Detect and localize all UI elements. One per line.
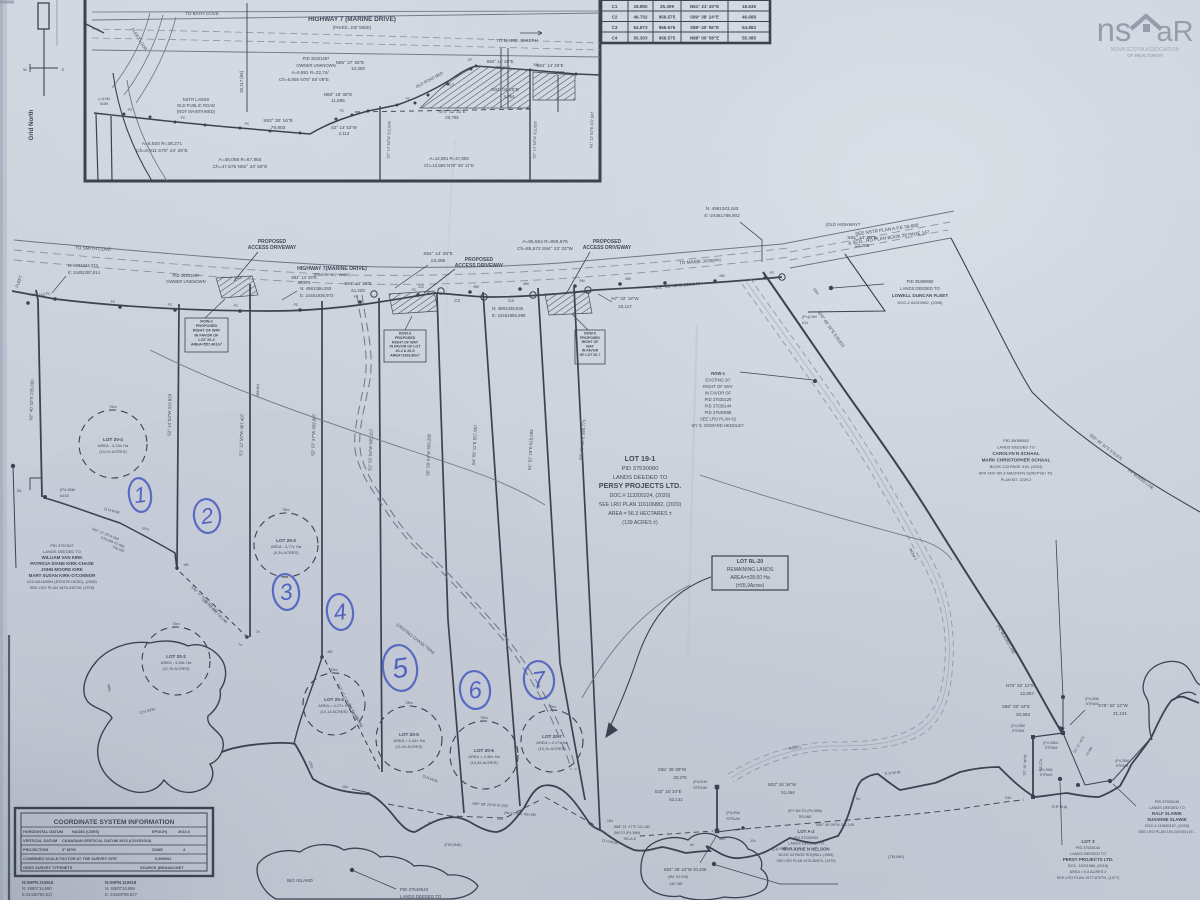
svg-text:C3: C3 [612,25,618,30]
svg-text:N:SHPN 210918: N:SHPN 210918 [105,880,137,885]
svg-text:31,131: 31,131 [1113,711,1127,716]
svg-text:18.850: 18.850 [633,4,647,9]
svg-text:69,576: 69,576 [298,280,311,285]
svg-text:LOT 19-1: LOT 19-1 [625,454,656,463]
svg-text:PERSY PROJECTS LTD.: PERSY PROJECTS LTD. [1063,857,1113,862]
svg-text:LANDS DEEDED TO: LANDS DEEDED TO [788,842,824,846]
svg-text:STRUM: STRUM [1086,702,1099,706]
svg-text:LOT A-2: LOT A-2 [798,829,815,834]
svg-text:PID 37530060: PID 37530060 [621,466,658,472]
svg-text:ns: ns [1097,11,1132,48]
svg-text:S84° 38' 43"W 30,408: S84° 38' 43"W 30,408 [664,867,708,872]
svg-text:PC: PC [181,116,186,120]
svg-text:N22° 16' 34"W: N22° 16' 34"W [768,782,797,787]
svg-text:4,954: 4,954 [504,94,516,99]
svg-text:(P4,35M: (P4,35M [1115,759,1129,763]
svg-text:52,141: 52,141 [669,797,683,802]
svg-text:54.873: 54.873 [633,25,647,30]
svg-text:LOT 3: LOT 3 [1081,839,1094,844]
svg-text:N85° 37' 56"E: N85° 37' 56"E [336,60,365,65]
svg-text:CP: CP [468,58,473,62]
svg-text:BM: BM [579,279,584,283]
svg-text:0,999931: 0,999931 [155,856,172,861]
svg-text:TO MARIE JOSEPH: TO MARIE JOSEPH [496,38,538,43]
svg-text:C2: C2 [418,284,424,289]
svg-text:RIGHT OF WAY: RIGHT OF WAY [392,340,419,344]
svg-text:LOT 20-7: LOT 20-7 [542,734,562,739]
svg-text:S89° 49' 09"W 341,149: S89° 49' 09"W 341,149 [816,823,854,827]
svg-text:(FILISM: (FILISM [693,780,707,784]
svg-text:20,117 [66]: 20,117 [66] [239,71,244,93]
svg-text:PC: PC [111,300,116,304]
svg-text:(OLD HIGHWAY7: (OLD HIGHWAY7 [826,222,861,227]
svg-text:HORIZONTAL DATUM: HORIZONTAL DATUM [23,829,63,834]
svg-text:NSTR LANDS: NSTR LANDS [183,97,210,102]
svg-text:78m: 78m [282,508,289,512]
svg-text:S84° 14' 29"E: S84° 14' 29"E [291,275,317,280]
svg-text:SEE LRO PLAN 19//-0/3784 (19..: SEE LRO PLAN 19//-0/3784 (19... [1138,830,1195,834]
svg-text:51,464: 51,464 [781,790,795,795]
svg-text:Ch=6,855 N78° 58' 08"E: Ch=6,855 N78° 58' 08"E [279,77,329,82]
svg-text:9M: 9M [184,563,189,567]
svg-text:LOT 20-4: LOT 20-4 [103,437,123,442]
svg-text:COMBINED SCALE FACTOR AT THE S: COMBINED SCALE FACTOR AT THE SURVEY SITE [23,856,117,861]
svg-text:A=48,058 R=67,864: A=48,058 R=67,864 [219,157,262,163]
svg-text:12,067: 12,067 [1020,691,1034,696]
svg-text:9±: 9± [428,821,432,825]
svg-text:AREA = 0,8 ACRES ±: AREA = 0,8 ACRES ± [1070,870,1107,874]
svg-text:LOT 20-3: LOT 20-3 [198,338,214,342]
svg-text:RALF SLAWIK: RALF SLAWIK [1152,811,1183,816]
svg-text:(P4,35M=: (P4,35M= [1043,741,1059,745]
svg-text:PID 35389980: PID 35389980 [907,279,934,284]
svg-text:CAROLYN N SCHAAL: CAROLYN N SCHAAL [992,451,1039,456]
svg-text:N51° 21' 20"E: N51° 21' 20"E [690,4,719,9]
svg-text:S84° 14' 29"E: S84° 14' 29"E [536,63,563,68]
svg-text:DOC#3148994 (ESTATE DEED), (20: DOC#3148994 (ESTATE DEED), (2006) [27,579,97,584]
svg-text:S88° 21' 47"E 131,182: S88° 21' 47"E 131,182 [614,825,650,829]
svg-text:N34° 04' 25"E: N34° 04' 25"E [491,87,518,92]
svg-text:PID 37543543: PID 37543543 [400,887,429,892]
svg-text:IN FAVOR OF LOT: IN FAVOR OF LOT [390,345,422,349]
svg-text:N:SHPN 210915: N:SHPN 210915 [22,880,54,885]
svg-text:ROW-3: ROW-3 [399,332,411,336]
svg-text:30,375: 30,375 [673,775,687,780]
svg-text:SEE LRO PLAN 1975-8257U, (1970: SEE LRO PLAN 1975-8257U, (1970) [776,859,835,863]
svg-text:BOOK 233 PAGE 918, (2004): BOOK 233 PAGE 918, (2004) [990,464,1044,469]
svg-text:PID 37530144: PID 37530144 [1076,846,1100,850]
svg-text:(10,14 ACRES): (10,14 ACRES) [320,709,348,714]
svg-text:N: 4981339,936: N: 4981339,936 [492,306,524,311]
svg-text:S78° 52' 12"W: S78° 52' 12"W [1098,703,1128,708]
svg-text:13,295: 13,295 [431,258,446,264]
svg-text:PC: PC [234,304,239,308]
svg-text:(10,8± ACRES): (10,8± ACRES) [470,760,498,765]
svg-text:STRUM: STRUM [693,786,707,790]
svg-text:BM: BM [719,274,724,278]
svg-text:18.635: 18.635 [742,4,756,9]
svg-text:(10,3± ACRES): (10,3± ACRES) [538,746,566,751]
svg-text:30,910: 30,910 [496,65,510,70]
svg-text:(NOT MAINTAINED): (NOT MAINTAINED) [177,109,216,114]
svg-text:NETS: NETS [62,865,73,870]
svg-text:IN FAVOR OF: IN FAVOR OF [705,391,732,396]
svg-text:78m: 78m [480,716,487,720]
svg-text:E: 24448799,527: E: 24448799,527 [105,892,138,897]
svg-text:LOT 20-2: LOT 20-2 [166,654,186,659]
svg-text:6189: 6189 [100,102,108,106]
svg-text:Grid North: Grid North [28,109,35,140]
svg-text:RIGHT OF WAY: RIGHT OF WAY [703,384,733,389]
svg-text:13±: 13± [1005,796,1011,800]
svg-text:956.575: 956.575 [659,25,676,30]
svg-text:N: 4981343,183: N: 4981343,183 [706,206,739,211]
svg-text:(TELINE): (TELINE) [888,854,905,859]
svg-text:PC: PC [245,122,250,126]
svg-text:BM: BM [625,277,630,281]
svg-text:JOHN MOORE KIRK: JOHN MOORE KIRK [41,567,84,572]
svg-text:D.H.W.M.: D.H.W.M. [1052,805,1068,810]
svg-text:DOC.# 84324982, (2008): DOC.# 84324982, (2008) [898,300,944,305]
svg-text:OF LOT 20-?: OF LOT 20-? [580,353,601,357]
svg-text:S32° 16' 34"E: S32° 16' 34"E [654,789,681,794]
svg-text:(Fv,35M: (Fv,35M [1040,768,1053,772]
svg-text:PC: PC [294,303,299,307]
svg-text:N: 4980718,990: N: 4980718,990 [22,886,52,891]
svg-text:(P4,35M: (P4,35M [1011,724,1025,728]
svg-text:MARJORIE N NELSON: MARJORIE N NELSON [782,846,829,851]
svg-text:WILLIAM VAN KIRK: WILLIAM VAN KIRK [42,555,84,560]
svg-text:76m: 76m [172,622,179,626]
svg-text:N70° 32' 31"E: N70° 32' 31"E [438,109,465,114]
svg-text:PC: PC [46,292,51,296]
svg-text:25.309: 25.309 [660,4,674,9]
svg-text:OF REALTORS®: OF REALTORS® [1127,52,1163,58]
svg-text:PID 37530126: PID 37530126 [705,397,732,402]
svg-text:LANDS DEEDED TO: LANDS DEEDED TO [900,286,940,291]
svg-text:20,755: 20,755 [445,115,459,120]
svg-text:S84° 14' 29"E: S84° 14' 29"E [486,59,513,64]
svg-text:LANDS DEEDED TO: LANDS DEEDED TO [400,894,442,899]
svg-text:79m: 79m [548,705,555,709]
svg-text:3° MTM: 3° MTM [62,847,76,852]
svg-text:E: 24451387,814: E: 24451387,814 [68,270,101,275]
svg-text:20,583: 20,583 [1016,712,1030,717]
svg-text:MARK CHRISTOPHER SCHAAL: MARK CHRISTOPHER SCHAAL [982,458,1051,463]
svg-text:VERTICAL DATUM: VERTICAL DATUM [23,838,57,843]
svg-text:55.303: 55.303 [633,36,647,41]
svg-text:N76° 52' 12"E: N76° 52' 12"E [1006,683,1035,688]
svg-text:10,390: 10,390 [351,66,365,71]
svg-text:LOT 20-5: LOT 20-5 [399,732,419,737]
svg-text:PID 37530598: PID 37530598 [705,410,732,415]
svg-text:LANDS DEEDED TO: LANDS DEEDED TO [43,549,81,554]
svg-text:(P4,35M: (P4,35M [1085,697,1099,701]
svg-text:(9M TO (P4,35M): (9M TO (P4,35M) [614,831,640,835]
svg-text:3±: 3± [17,488,22,493]
svg-text:PERSY PROJECTS LTD.: PERSY PROJECTS LTD. [599,481,681,490]
svg-text:OWNER UNKNOWN: OWNER UNKNOWN [166,279,205,284]
svg-text:BM: BM [473,285,478,289]
svg-text:BOOK 63 PAGE ROQWILL (1969): BOOK 63 PAGE ROQWILL (1969) [779,853,834,857]
svg-text:(±55,9Acres): (±55,9Acres) [736,583,765,589]
svg-text:20-4 & 20-5: 20-4 & 20-5 [396,349,415,353]
svg-text:PC: PC [128,108,133,112]
svg-text:N88° 00' 58"E: N88° 00' 58"E [690,36,719,41]
svg-text:AREA = 4,17± Ha: AREA = 4,17± Ha [536,740,568,745]
svg-text:S88° 40' 56"E: S88° 40' 56"E [690,25,719,30]
svg-text:S89° 38' 24"E: S89° 38' 24"E [690,15,719,20]
svg-text:OWNER UNKNOWN: OWNER UNKNOWN [296,63,335,68]
svg-text:aR: aR [1156,16,1193,48]
svg-text:SOURCE (BRANACNET: SOURCE (BRANACNET [140,865,184,870]
svg-text:C2: C2 [612,15,618,20]
svg-text:21±: 21± [497,817,503,821]
svg-text:STRUM: STRUM [1012,729,1025,733]
svg-text:TIELA-E: TIELA-E [623,837,637,841]
svg-text:LOT RL-20: LOT RL-20 [737,559,763,565]
svg-text:ZONE: ZONE [152,847,163,852]
svg-text:SEE LRO PLAN 62: SEE LRO PLAN 62 [700,417,737,422]
svg-text:79,803: 79,803 [271,125,286,131]
svg-text:LOT 20-4: LOT 20-4 [324,697,344,702]
svg-text:140 INE: 140 INE [669,882,683,886]
svg-text:LANDS DEEDED TO: LANDS DEEDED TO [997,445,1035,450]
svg-text:(11,0± ACRES): (11,0± ACRES) [395,744,423,749]
svg-text:(PAVED, 100' WIDE): (PAVED, 100' WIDE) [333,25,372,30]
svg-text:AREA=±28,60 Ha: AREA=±28,60 Ha [730,575,770,581]
svg-text:TO BATH COVE: TO BATH COVE [185,11,219,16]
svg-text:W: W [23,68,27,72]
svg-text:N7° 02' 18"W: N7° 02' 18"W [611,296,639,301]
svg-text:PC: PC [770,271,775,275]
svg-text:SEE LRO PLAN 1875-030781 (1975: SEE LRO PLAN 1875-030781 (1975) [30,585,95,590]
svg-text:NAD83 (CSRS): NAD83 (CSRS) [72,829,100,834]
svg-text:(P4.35M: (P4.35M [60,487,75,492]
svg-text:STRUM: STRUM [726,817,740,821]
svg-text:AREA=557,461m²: AREA=557,461m² [191,343,223,347]
svg-text:54.883: 54.883 [742,25,756,30]
svg-text:COORDINATE SYSTEM INFORMATIO: COORDINATE SYSTEM INFORMATION [54,819,175,826]
svg-text:SFR TAXI OR & MACKFFN SURVFYB: SFR TAXI OR & MACKFFN SURVFYB I TD. [979,472,1054,476]
svg-text:S84° 14' 29"E: S84° 14' 29"E [344,281,371,286]
svg-text:S65° 45' 09"W: S65° 45' 09"W [658,767,687,772]
svg-text:LANDS DEEDED TO: LANDS DEEDED TO [1070,852,1106,856]
svg-text:IN FAVOR OF: IN FAVOR OF [195,333,220,337]
svg-text:PROPOSED: PROPOSED [395,336,416,340]
svg-text:PC: PC [412,288,417,292]
svg-text:PID 35331497: PID 35331497 [303,56,330,61]
svg-text:E: 24451956,995: E: 24451956,995 [492,313,526,318]
svg-text:SEE LRO PLAN 116106882, (2020): SEE LRO PLAN 116106882, (2020) [599,502,682,508]
svg-text:SEE LRO PLAN 1977-875TH, (1977: SEE LRO PLAN 1977-875TH, (1977) [1057,876,1120,880]
svg-text:S2° 14' 53"W 312,829: S2° 14' 53"W 312,829 [167,393,173,436]
svg-text:AREA = 56.3 HECTARES ±: AREA = 56.3 HECTARES ± [608,511,672,517]
svg-text:(9M TO EM): (9M TO EM) [668,875,689,879]
svg-text:Ch=85,572 S84° 23' 33"W: Ch=85,572 S84° 23' 33"W [517,246,573,252]
svg-text:18±: 18± [607,819,613,823]
svg-text:(TIELINE): (TIELINE) [444,842,462,847]
svg-text:79m: 79m [330,668,337,672]
svg-text:HIGHWAY 7 (MARINE DRIVE): HIGHWAY 7 (MARINE DRIVE) [308,16,396,23]
svg-text:Ch=12,865 N78° 06' 11"E: Ch=12,865 N78° 06' 11"E [424,163,474,168]
svg-text:EASTING 20': EASTING 20' [705,378,730,383]
svg-text:N: 4981356,293: N: 4981356,293 [300,286,332,291]
svg-text:956.575: 956.575 [659,36,676,41]
svg-text:A=85,584 R=956,575: A=85,584 R=956,575 [522,239,568,245]
svg-text:PID 35089952: PID 35089952 [1003,438,1029,443]
svg-text:7±: 7± [256,630,260,634]
svg-text:A=12,891 R=47,808: A=12,891 R=47,808 [429,156,469,161]
svg-text:(PAVED, 102' WIDE): (PAVED, 102' WIDE) [314,272,352,277]
svg-text:PID 37530093: PID 37530093 [794,836,818,840]
svg-text:S83° 30' 16"E: S83° 30' 16"E [263,118,293,124]
svg-text:LOWELL DUNCAN FLEET: LOWELL DUNCAN FLEET [892,293,949,298]
svg-text:20,117: 20,117 [618,304,632,309]
svg-text:2,113: 2,113 [339,131,350,136]
svg-text:DOC.# 119831167, (2016): DOC.# 119831167, (2016) [1145,824,1190,828]
svg-text:(139 ACRES ±): (139 ACRES ±) [622,520,658,526]
svg-text:STRUM: STRUM [1045,746,1058,750]
svg-text:BIG ISLAND: BIG ISLAND [287,878,313,883]
svg-text:RIGHT OF WAY: RIGHT OF WAY [193,329,221,333]
svg-text:ACCESS DRIVEWAY: ACCESS DRIVEWAY [248,245,297,251]
svg-text:AREA - 3,77± Ha: AREA - 3,77± Ha [271,544,302,549]
svg-text:ACCESS DRIVEWAY: ACCESS DRIVEWAY [455,263,504,269]
svg-text:ROW-2: ROW-2 [200,320,213,324]
svg-text:CANADIAN VERTICAL DATUM 2013 (: CANADIAN VERTICAL DATUM 2013 (CGVD2013) [62,838,152,843]
svg-text:S2° 14' 53"W: S2° 14' 53"W [331,125,358,130]
svg-text:(=)L9M: (=)L9M [98,97,109,101]
svg-text:DOC.# 113205224, (2020): DOC.# 113205224, (2020) [610,493,671,499]
svg-text:2010.0: 2010.0 [178,829,190,834]
svg-text:PATRICIA DIANE KIRK-CHASE: PATRICIA DIANE KIRK-CHASE [30,561,94,566]
svg-text:E: E [62,68,65,72]
svg-text:PID 37530144: PID 37530144 [705,404,732,409]
svg-text:55.385: 55.385 [742,36,756,41]
svg-text:S88° 03' 44"E: S88° 03' 44"E [1002,704,1030,709]
svg-text:9±: 9± [856,797,860,801]
svg-text:AREA - 4,24± Ha: AREA - 4,24± Ha [98,443,129,448]
svg-text:SUSANNE SLAWIK: SUSANNE SLAWIK [1147,817,1188,822]
svg-text:7±: 7± [238,643,242,647]
svg-text:384,801: 384,801 [256,383,260,396]
svg-text:956.575: 956.575 [659,15,676,20]
svg-text:11,855: 11,855 [331,98,345,103]
svg-text:46.702: 46.702 [633,15,647,20]
svg-text:PC: PC [354,295,359,299]
svg-text:PC: PC [340,109,345,113]
svg-text:16±: 16± [342,785,348,789]
svg-text:46.688: 46.688 [742,15,756,20]
svg-text:Ch=6,911 S78° 24' 26"E: Ch=6,911 S78° 24' 26"E [136,148,188,154]
svg-text:Ch=47,575 N82° 23' 55"E: Ch=47,575 N82° 23' 55"E [213,164,268,170]
svg-text:(FILISM: (FILISM [726,811,740,815]
svg-text:PID 37500136: PID 37500136 [1155,800,1179,804]
svg-text:BM: BM [523,282,528,286]
svg-text:A=6,920 R=38,271: A=6,920 R=38,271 [142,141,183,147]
svg-text:E: 24451835,973: E: 24451835,973 [300,293,334,298]
svg-text:BY G. EDWARD HENGLEY: BY G. EDWARD HENGLEY [692,423,744,428]
svg-text:61,203: 61,203 [351,288,365,293]
svg-text:PLAN NO. 2229-2: PLAN NO. 2229-2 [1001,478,1032,482]
svg-text:PROPOSED: PROPOSED [196,324,218,328]
svg-text:LANDS DEEDED TO: LANDS DEEDED TO [1149,806,1185,810]
svg-text:AREA - 4,56± Ha: AREA - 4,56± Ha [161,660,192,665]
svg-text:(10,2± ACRES): (10,2± ACRES) [99,449,127,454]
svg-text:#11: #11 [802,321,808,325]
svg-text:8M: 8M [328,650,333,654]
svg-text:STRUM: STRUM [1116,764,1129,768]
svg-text:C3: C3 [454,298,460,303]
svg-text:ACCESS DRIVEWAY: ACCESS DRIVEWAY [583,245,632,251]
svg-text:E:-24451788,902: E:-24451788,902 [704,213,740,218]
svg-text:(11,76 ACRES): (11,76 ACRES) [162,666,190,671]
svg-text:S84° 14' 28"E: S84° 14' 28"E [423,251,453,257]
svg-text:PC: PC [168,303,173,307]
svg-text:(IFY 9M TO (P4,35M): (IFY 9M TO (P4,35M) [788,809,822,813]
svg-text:76m: 76m [109,405,116,409]
svg-text:PID 3757697: PID 3757697 [50,543,74,548]
svg-text:89,576: 89,576 [551,70,565,75]
svg-text:PROJECTION: PROJECTION [23,847,48,852]
svg-text:C4: C4 [612,36,618,41]
svg-text:STRUM: STRUM [1040,773,1053,777]
svg-text:78m: 78m [405,701,412,705]
svg-text:ROW-1: ROW-1 [711,371,726,376]
svg-text:C1: C1 [612,4,618,9]
svg-text:REMAINING LANDS: REMAINING LANDS [727,567,774,573]
svg-text:N69° 18' 08"E: N69° 18' 08"E [324,92,353,97]
svg-text:E:24448790,53): E:24448790,53) [22,892,52,897]
svg-text:#153: #153 [60,493,70,498]
svg-text:MARY SUSAN KIRK-O'CONNOR: MARY SUSAN KIRK-O'CONNOR [29,573,96,578]
svg-text:OLD PUBLIC ROAD: OLD PUBLIC ROAD [177,103,215,108]
svg-text:N: 4980718,999: N: 4980718,999 [105,886,135,891]
svg-text:C4: C4 [508,298,514,303]
svg-text:DOC. 11001986, (2018): DOC. 11001986, (2018) [1068,864,1109,868]
svg-text:TIELINE: TIELINE [798,815,812,819]
svg-text:LOT 20-6: LOT 20-6 [474,748,494,753]
svg-text:AREA = 4,36± Ha: AREA = 4,36± Ha [468,754,500,759]
svg-text:N: 4981334,774: N: 4981334,774 [68,263,98,268]
svg-text:EPOCH): EPOCH) [152,829,168,834]
svg-text:A=6,881 R=22,74/: A=6,881 R=22,74/ [291,70,329,75]
svg-text:PID 35331897: PID 35331897 [173,273,200,278]
svg-text:AREA = 4,27± Ha: AREA = 4,27± Ha [318,703,350,708]
svg-text:(P=)L9M: (P=)L9M [802,315,817,319]
svg-text:GNSS SURVEY TYPE: GNSS SURVEY TYPE [23,865,63,870]
svg-text:4±: 4± [690,843,694,847]
svg-text:AREA=1269,80m²: AREA=1269,80m² [390,354,420,358]
svg-text:11±: 11± [750,839,756,843]
svg-text:(9,3± ACRES): (9,3± ACRES) [273,550,299,555]
svg-text:LOT 20-3: LOT 20-3 [276,538,296,543]
svg-text:AREA = 4,44± Ha: AREA = 4,44± Ha [393,738,425,743]
svg-text:PC: PC [406,97,411,101]
